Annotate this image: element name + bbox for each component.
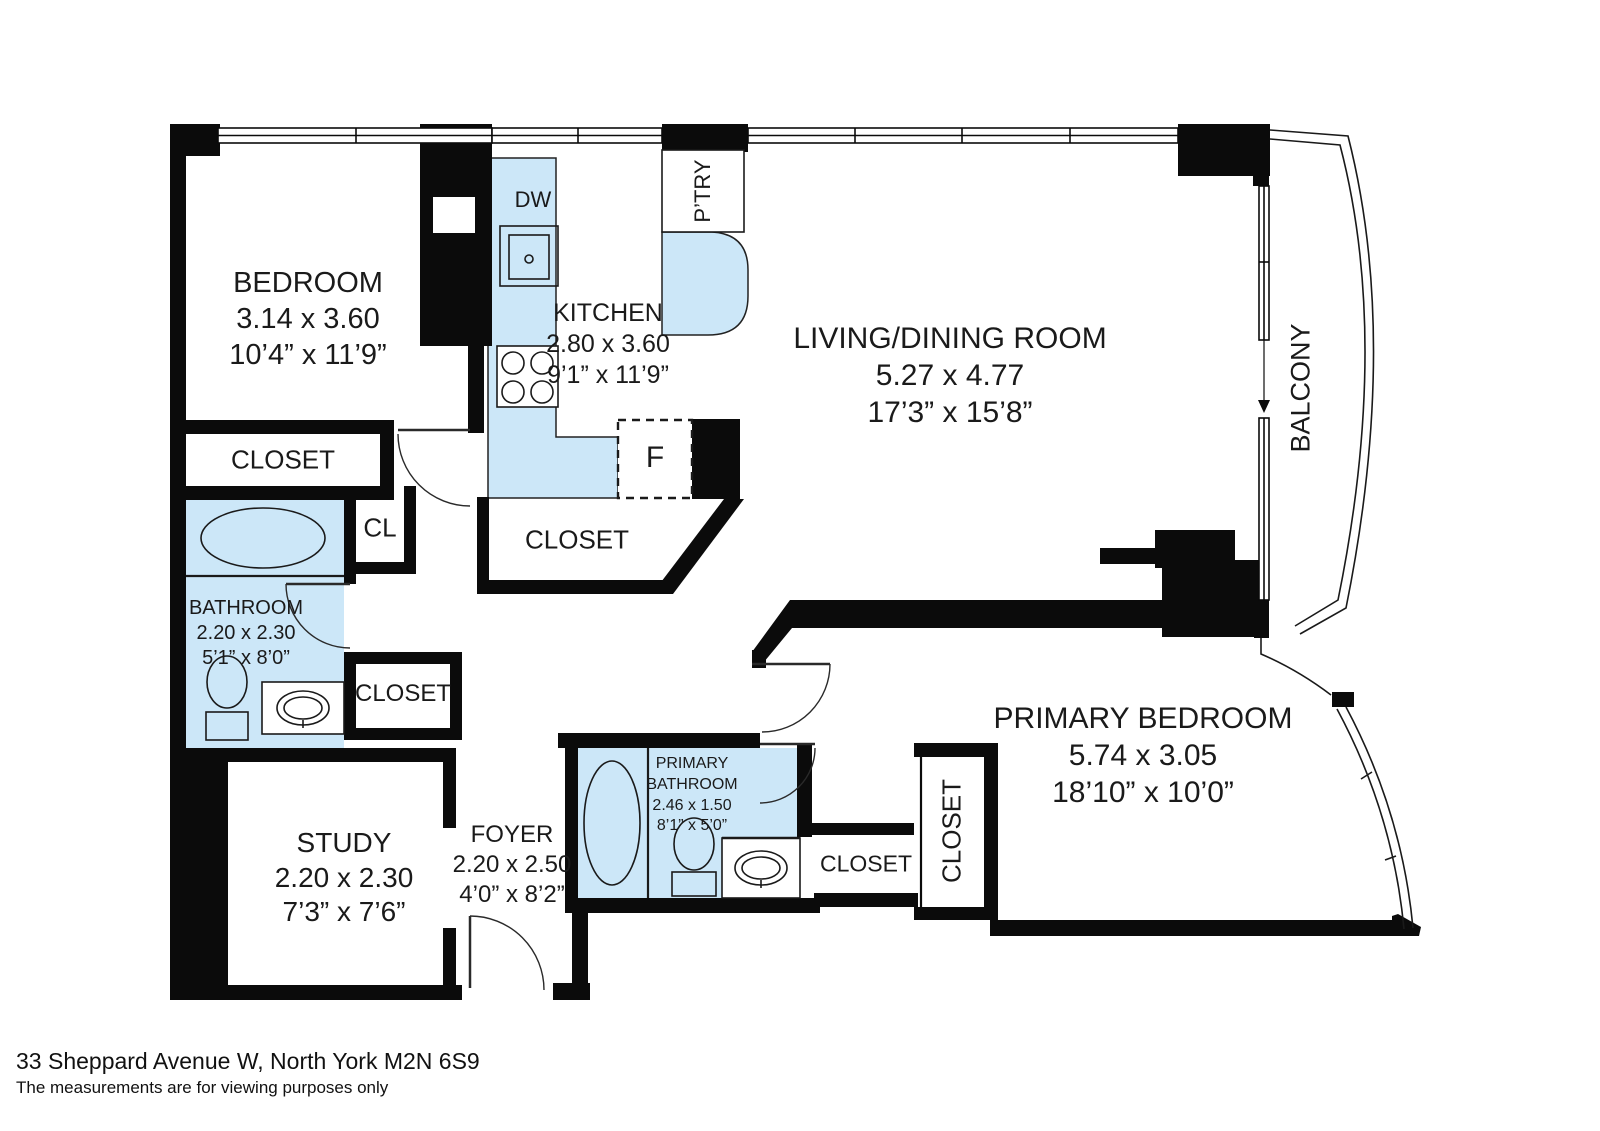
primary-bedroom-imperial: 18’10” x 10’0” bbox=[994, 774, 1293, 811]
foyer-imperial: 4’0” x 8’2” bbox=[453, 880, 572, 910]
kitchen-closet-label: CLOSET bbox=[525, 525, 629, 556]
bathroom-metric: 2.20 x 2.30 bbox=[189, 621, 303, 646]
window-sill bbox=[1332, 692, 1354, 707]
living-dining-label: LIVING/DINING ROOM 5.27 x 4.77 17’3” x 1… bbox=[793, 320, 1106, 432]
balcony-glazing bbox=[1258, 186, 1270, 600]
living-dining-metric: 5.27 x 4.77 bbox=[793, 357, 1106, 394]
primary-bedroom-label: PRIMARY BEDROOM 5.74 x 3.05 18’10” x 10’… bbox=[994, 700, 1293, 812]
angled-wall bbox=[652, 499, 744, 594]
foyer-metric: 2.20 x 2.50 bbox=[453, 850, 572, 880]
kitchen-imperial: 9’1” x 11’9” bbox=[546, 360, 670, 391]
balcony-label: BALCONY bbox=[1286, 323, 1317, 452]
bedroom-imperial: 10’4” x 11’9” bbox=[229, 338, 386, 374]
hall-closet-label: CLOSET bbox=[355, 680, 451, 708]
bedroom-metric: 3.14 x 3.60 bbox=[229, 302, 386, 338]
living-dining-imperial: 17’3” x 15’8” bbox=[793, 394, 1106, 431]
bedroom-name: BEDROOM bbox=[229, 266, 386, 302]
primary-bathroom-name1: PRIMARY bbox=[646, 754, 737, 775]
primary-sink-counter bbox=[722, 838, 800, 898]
bathroom-name: BATHROOM bbox=[189, 596, 303, 621]
kitchen-metric: 2.80 x 3.60 bbox=[546, 329, 670, 360]
primary-bedroom-name: PRIMARY BEDROOM bbox=[994, 700, 1293, 737]
primary-bathroom-name2: BATHROOM bbox=[646, 775, 737, 796]
cl-closet-label: CL bbox=[363, 513, 396, 544]
disclaimer-line: The measurements are for viewing purpose… bbox=[16, 1078, 388, 1098]
fridge-label: F bbox=[646, 441, 664, 475]
primary-closet-label: CLOSET bbox=[820, 851, 912, 878]
kitchen-name: KITCHEN bbox=[546, 298, 670, 329]
living-dining-name: LIVING/DINING ROOM bbox=[793, 320, 1106, 357]
floorplan-drawing bbox=[0, 0, 1600, 1131]
slide-arrow-icon bbox=[1258, 400, 1270, 413]
primary-bathroom-imperial: 8’1” x 5’0” bbox=[646, 816, 737, 837]
foyer-label: FOYER 2.20 x 2.50 4’0” x 8’2” bbox=[453, 820, 572, 909]
primary-bedroom-metric: 5.74 x 3.05 bbox=[994, 737, 1293, 774]
floorplan-page: BEDROOM 3.14 x 3.60 10’4” x 11’9” KITCHE… bbox=[0, 0, 1600, 1131]
bathroom-imperial: 5’1” x 8’0” bbox=[189, 646, 303, 671]
primary-bathroom-label: PRIMARY BATHROOM 2.46 x 1.50 8’1” x 5’0” bbox=[646, 754, 737, 837]
shaft-notch bbox=[432, 196, 476, 234]
pantry-label: P’TRY bbox=[690, 159, 716, 222]
primary-bathroom-metric: 2.46 x 1.50 bbox=[646, 796, 737, 817]
address-line: 33 Sheppard Avenue W, North York M2N 6S9 bbox=[16, 1048, 480, 1075]
kitchen-island-counter bbox=[662, 232, 748, 335]
study-name: STUDY bbox=[275, 826, 414, 861]
foyer-name: FOYER bbox=[453, 820, 572, 850]
study-label: STUDY 2.20 x 2.30 7’3” x 7’6” bbox=[275, 826, 414, 930]
bedroom-closet-label: CLOSET bbox=[231, 445, 335, 476]
study-imperial: 7’3” x 7’6” bbox=[275, 895, 414, 930]
bathroom-label: BATHROOM 2.20 x 2.30 5’1” x 8’0” bbox=[189, 596, 303, 670]
dishwasher-label: DW bbox=[515, 187, 552, 213]
bedroom-label: BEDROOM 3.14 x 3.60 10’4” x 11’9” bbox=[229, 266, 386, 374]
kitchen-label: KITCHEN 2.80 x 3.60 9’1” x 11’9” bbox=[546, 298, 670, 391]
living-south-wall bbox=[752, 600, 1175, 662]
study-metric: 2.20 x 2.30 bbox=[275, 861, 414, 896]
corner-sill bbox=[1392, 914, 1421, 936]
primary-closet-vertical-label: CLOSET bbox=[937, 779, 968, 883]
